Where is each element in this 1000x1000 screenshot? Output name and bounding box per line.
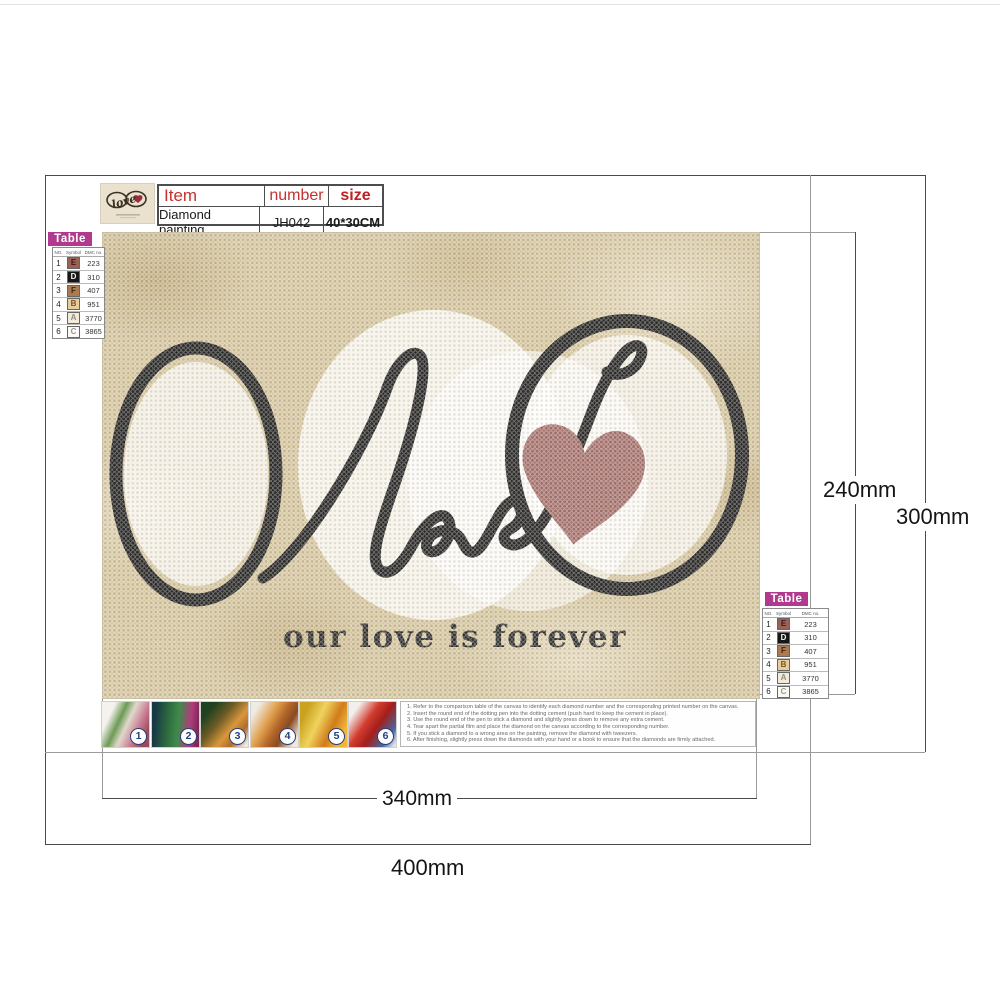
outer-top-line [45, 175, 925, 176]
step-number-badge: 6 [377, 728, 394, 745]
dim-400-line [45, 844, 811, 845]
legend-header-row: NO. Symbol DMC no. [53, 248, 104, 257]
info-header-number: number [265, 186, 329, 206]
legend-row: 4B951 [53, 298, 104, 312]
legend-col-symbol: Symbol [774, 611, 793, 616]
logo-infinity-art: love [101, 184, 154, 223]
legend-row-code: 951 [793, 660, 828, 669]
legend-symbol-swatch: D [774, 632, 793, 644]
legend-row-no: 1 [763, 620, 774, 629]
legend-row-code: 407 [83, 286, 104, 295]
legend-row: 6C3865 [763, 686, 828, 699]
outer-left-line [45, 175, 46, 845]
dim-label-240mm: 240mm [818, 476, 901, 504]
legend-row-no: 6 [763, 687, 774, 696]
instruction-line: 4. Tear apart the partial film and place… [407, 724, 749, 731]
legend-row: 2D310 [763, 632, 828, 646]
legend-row-no: 1 [53, 259, 64, 268]
legend-row-no: 5 [763, 674, 774, 683]
legend-col-code: DMC no. [83, 250, 104, 255]
step-image-5: 5 [299, 701, 348, 748]
legend-row-code: 951 [83, 300, 104, 309]
legend-row: 4B951 [763, 659, 828, 673]
legend-symbol-swatch: B [64, 298, 83, 310]
instruction-line: 3. Use the round end of the pen to stick… [407, 717, 749, 724]
legend-row-code: 310 [83, 273, 104, 282]
legend-row-no: 5 [53, 314, 64, 323]
instruction-line: 2. Insert the round end of the dotting p… [407, 711, 749, 718]
legend-row-code: 3865 [83, 327, 104, 336]
legend-right-table: NO. Symbol DMC no. 1E223 2D310 3F407 4B9… [762, 608, 829, 699]
legend-row: 3F407 [763, 645, 828, 659]
legend-symbol-swatch: A [774, 672, 793, 684]
legend-row: 5A3770 [53, 312, 104, 326]
legend-symbol-swatch: F [64, 285, 83, 297]
instructions-box: 1. Refer to the comparison table of the … [400, 701, 756, 747]
legend-symbol-swatch: A [64, 312, 83, 324]
legend-row-code: 310 [793, 633, 828, 642]
legend-col-no: NO. [763, 611, 774, 616]
canvas-preview: our love is forever [102, 232, 760, 699]
legend-left-title: Table [48, 232, 92, 246]
step-image-3: 3 [200, 701, 249, 748]
logo-word: love [110, 192, 138, 211]
step-number-badge: 2 [180, 728, 197, 745]
infinity-love-artwork: our love is forever [103, 233, 759, 698]
info-header-size: size [329, 186, 382, 206]
legend-symbol-swatch: E [774, 618, 793, 630]
info-header-item: Item [159, 186, 265, 206]
dim-label-340mm: 340mm [377, 786, 457, 812]
legend-col-no: NO. [53, 250, 64, 255]
legend-row-code: 223 [793, 620, 828, 629]
dim-label-400mm: 400mm [386, 854, 469, 882]
canvas-right-extension [756, 699, 757, 798]
step-image-1: 1 [101, 701, 150, 748]
instruction-line: 5. If you stick a diamond to a wrong are… [407, 731, 749, 738]
step-image-4: 4 [250, 701, 299, 748]
legend-row-code: 3865 [793, 687, 828, 696]
legend-row-code: 407 [793, 647, 828, 656]
legend-col-symbol: Symbol [64, 250, 83, 255]
legend-symbol-swatch: B [774, 659, 793, 671]
step-number-badge: 1 [130, 728, 147, 745]
legend-row-no: 3 [53, 286, 64, 295]
item-info-table: Item number size Diamond painting JH042 … [157, 184, 384, 226]
legend-symbol-swatch: E [64, 257, 83, 269]
legend-row: 1E223 [763, 618, 828, 632]
legend-symbol-swatch: C [64, 326, 83, 338]
legend-row: 6C3865 [53, 325, 104, 338]
dim-300-line [925, 175, 926, 752]
legend-symbol-swatch: C [774, 686, 793, 698]
bottom-extension-line [45, 752, 925, 753]
legend-symbol-swatch: D [64, 271, 83, 283]
dim-label-300mm: 300mm [891, 503, 974, 531]
product-dimension-diagram: 340mm 400mm 240mm 300mm love Item number… [0, 0, 1000, 1000]
photo-top-edge [0, 4, 1000, 5]
step-number-badge: 5 [328, 728, 345, 745]
legend-symbol-swatch: F [774, 645, 793, 657]
step-number-badge: 3 [229, 728, 246, 745]
legend-row: 5A3770 [763, 672, 828, 686]
legend-row-no: 2 [763, 633, 774, 642]
legend-right-title: Table [765, 592, 808, 606]
instruction-line: 6. After finishing, slightly press down … [407, 737, 749, 744]
legend-row: 3F407 [53, 284, 104, 298]
legend-row-no: 4 [763, 660, 774, 669]
legend-row: 1E223 [53, 257, 104, 271]
legend-row-code: 223 [83, 259, 104, 268]
legend-left-table: NO. Symbol DMC no. 1E223 2D310 3F407 4B9… [52, 247, 105, 339]
right-extension-line [810, 175, 811, 844]
brand-logo: love [100, 183, 155, 224]
legend-row-no: 4 [53, 300, 64, 309]
legend-row-no: 6 [53, 327, 64, 336]
instruction-line: 1. Refer to the comparison table of the … [407, 704, 749, 711]
legend-row-code: 3770 [83, 314, 104, 323]
legend-row: 2D310 [53, 271, 104, 285]
legend-row-code: 3770 [793, 674, 828, 683]
legend-row-no: 3 [763, 647, 774, 656]
info-table-header-row: Item number size [159, 186, 382, 207]
step-image-2: 2 [151, 701, 200, 748]
canvas-caption: our love is forever [283, 619, 627, 655]
step-image-6: 6 [348, 701, 397, 748]
dim-240-top-connector [758, 232, 855, 233]
step-number-badge: 4 [279, 728, 296, 745]
legend-header-row: NO. Symbol DMC no. [763, 609, 828, 618]
legend-col-code: DMC no. [793, 611, 828, 616]
legend-row-no: 2 [53, 273, 64, 282]
dim-240-line [855, 232, 856, 694]
